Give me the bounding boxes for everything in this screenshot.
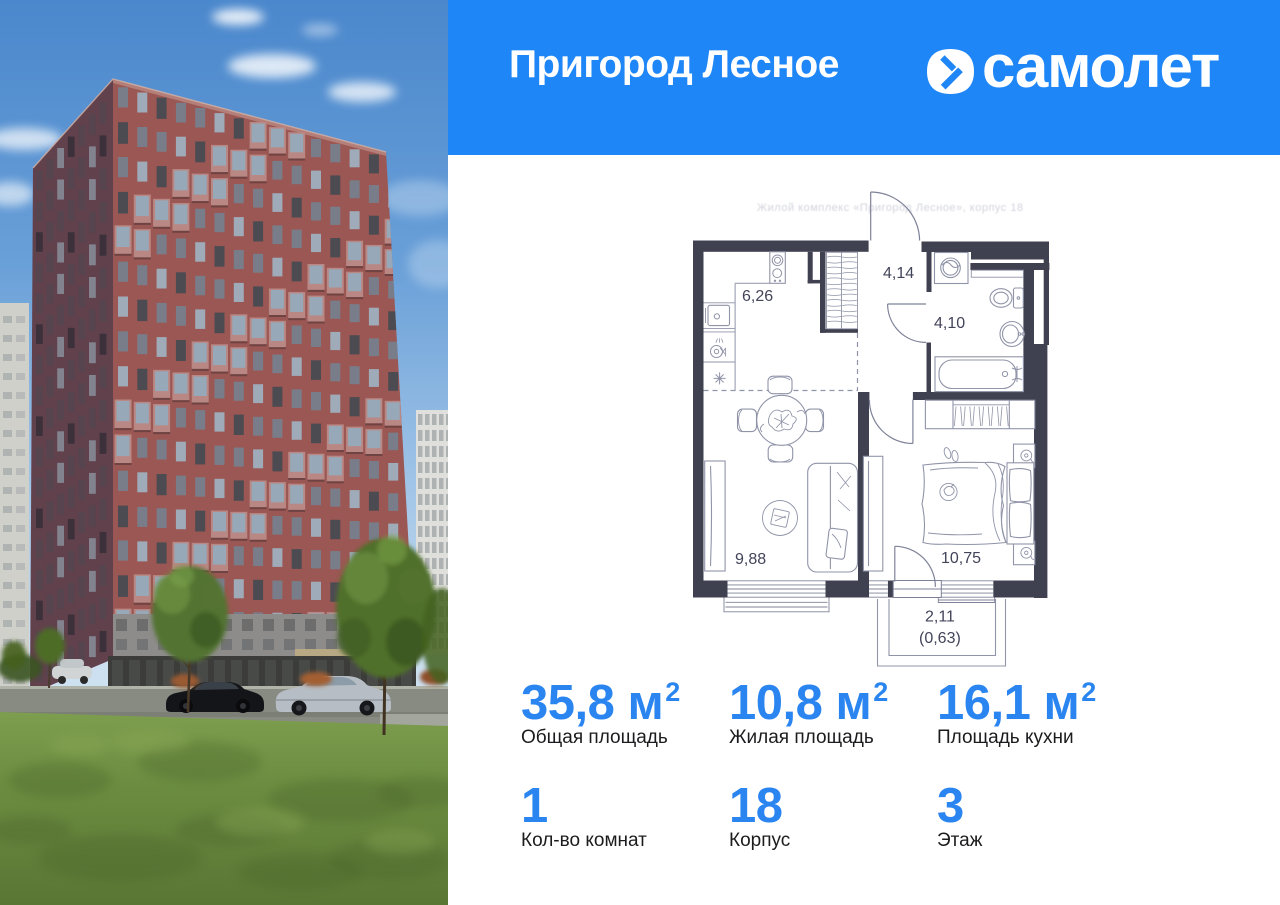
svg-text:2,11: 2,11 [925, 609, 955, 626]
svg-text:9,88: 9,88 [735, 551, 766, 568]
svg-text:6,26: 6,26 [742, 288, 773, 305]
svg-text:4,14: 4,14 [883, 265, 914, 282]
svg-text:4,10: 4,10 [934, 315, 965, 332]
svg-text:(0,63): (0,63) [919, 630, 961, 647]
svg-text:10,75: 10,75 [941, 550, 981, 567]
